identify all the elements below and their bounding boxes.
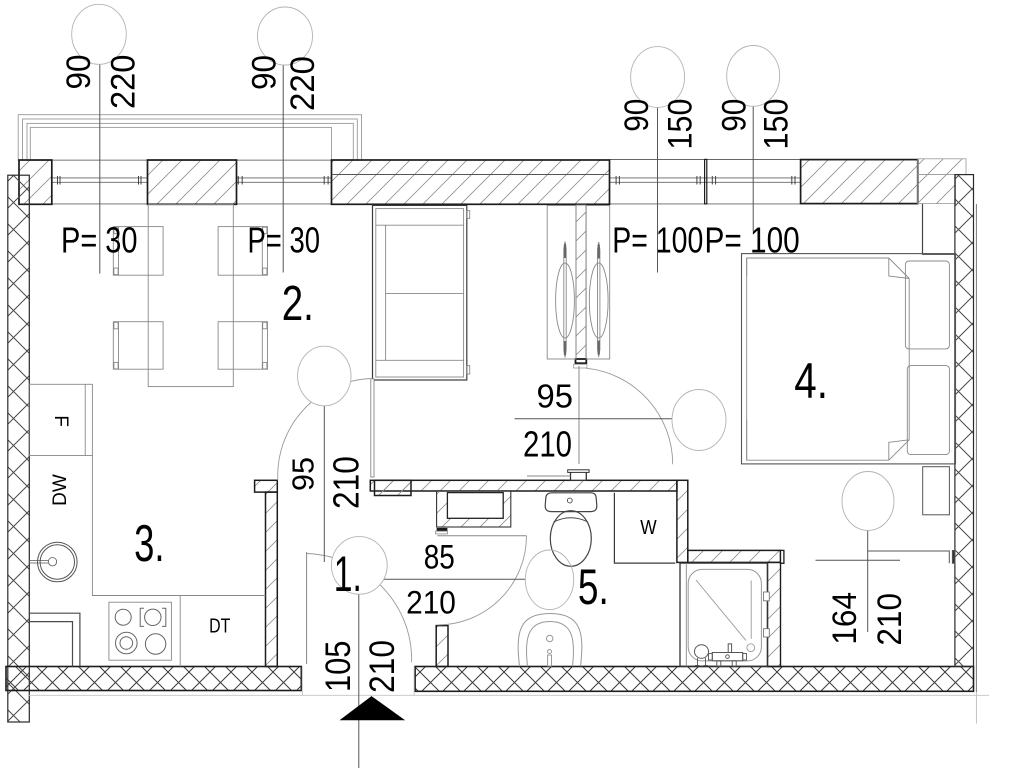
svg-text:90: 90 — [618, 99, 656, 132]
svg-text:DT: DT — [209, 615, 231, 638]
svg-text:90: 90 — [716, 99, 754, 132]
svg-text:2.: 2. — [282, 276, 314, 331]
svg-text:P= 30: P= 30 — [248, 220, 321, 261]
svg-text:210: 210 — [325, 456, 366, 509]
svg-text:W: W — [640, 516, 657, 539]
svg-text:P= 100: P= 100 — [612, 220, 703, 261]
svg-text:5.: 5. — [578, 558, 609, 615]
svg-text:150: 150 — [661, 99, 699, 150]
svg-text:150: 150 — [758, 99, 796, 150]
svg-text:P= 100: P= 100 — [705, 220, 800, 261]
svg-text:210: 210 — [406, 585, 456, 621]
svg-text:90: 90 — [246, 55, 284, 90]
svg-text:4.: 4. — [794, 353, 828, 409]
svg-text:164: 164 — [826, 592, 864, 645]
svg-text:210: 210 — [523, 424, 572, 465]
svg-text:DW: DW — [50, 474, 71, 506]
svg-text:90: 90 — [60, 55, 98, 90]
svg-text:95: 95 — [537, 378, 574, 415]
svg-text:210: 210 — [871, 593, 909, 646]
svg-text:210: 210 — [362, 640, 402, 693]
svg-text:105: 105 — [319, 641, 358, 693]
svg-text:220: 220 — [284, 56, 322, 111]
svg-text:P= 30: P= 30 — [61, 220, 138, 261]
svg-text:85: 85 — [424, 538, 455, 576]
svg-text:95: 95 — [286, 457, 321, 491]
svg-text:220: 220 — [105, 55, 143, 110]
svg-text:F: F — [50, 415, 71, 427]
svg-text:1.: 1. — [334, 546, 362, 602]
svg-text:3.: 3. — [134, 515, 164, 573]
